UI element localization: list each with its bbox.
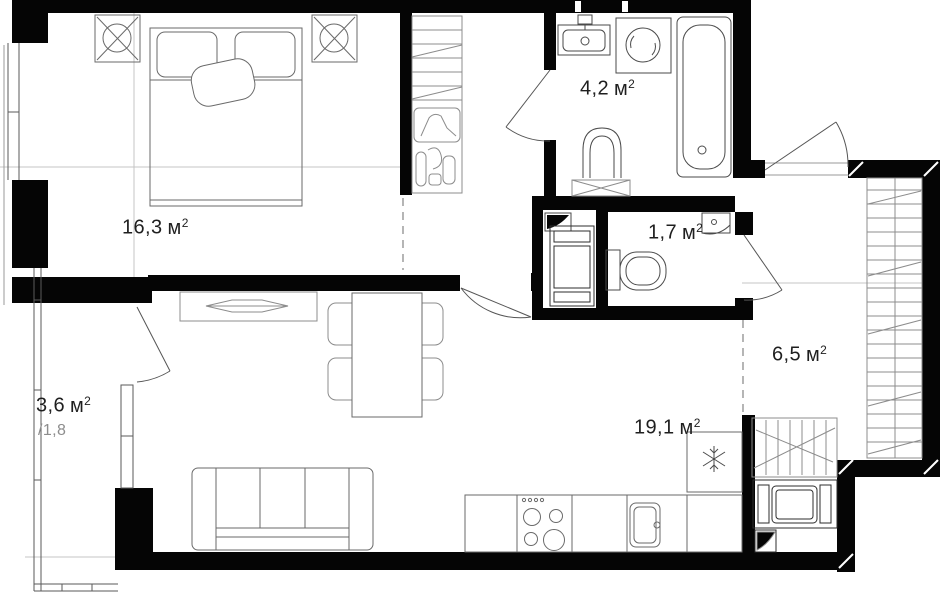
tv-stand xyxy=(180,292,317,321)
bathroom-toilet xyxy=(583,128,621,178)
bath-mat xyxy=(572,180,630,196)
kitchen-sink xyxy=(630,503,660,547)
washing-machine xyxy=(616,18,671,73)
balcony-reduced-area-label: /1,8 xyxy=(38,423,66,439)
bathroom-door xyxy=(506,70,550,141)
vent-duct-icon xyxy=(545,213,571,231)
fridge xyxy=(687,432,742,492)
living-room-door xyxy=(461,288,531,318)
wc-corner-sink xyxy=(702,213,730,234)
wc-area-label: 1,7м2 xyxy=(648,221,703,243)
balcony-door xyxy=(137,307,170,382)
bedroom-area-label: 16,3м2 xyxy=(122,216,189,238)
hallway-shelf-wardrobe xyxy=(867,178,922,458)
coat-rail-wardrobe xyxy=(752,418,837,477)
dining-set xyxy=(328,293,443,417)
bedside-table-right xyxy=(312,15,357,62)
microwave-unit xyxy=(753,480,837,528)
entrance-door xyxy=(765,122,848,175)
bedside-table-left xyxy=(95,15,140,62)
kitchen-counter xyxy=(465,432,742,552)
bathroom-fixtures xyxy=(558,15,731,196)
wc-door xyxy=(744,235,782,300)
bathtub xyxy=(677,17,731,177)
windows xyxy=(4,43,133,591)
vent-duct-icon xyxy=(755,530,776,552)
wc-toilet xyxy=(606,250,666,290)
balcony-area-label: 3,6м2 xyxy=(36,394,91,416)
dining-table xyxy=(352,293,422,417)
living-kitchen-area-label: 19,1м2 xyxy=(634,416,701,438)
floor-plan: 16,3м2 4,2м2 1,7м2 6,5м2 19,1м2 3,6м2 /1… xyxy=(0,0,940,600)
stove xyxy=(522,498,564,550)
hallway-area-label: 6,5м2 xyxy=(772,343,827,365)
stroller-icon xyxy=(416,148,455,186)
chaise-icon xyxy=(414,108,460,142)
double-bed xyxy=(150,28,302,206)
corridor-wardrobe xyxy=(412,16,462,193)
bathroom-area-label: 4,2м2 xyxy=(580,77,635,99)
floor-plan-drawing xyxy=(0,0,940,600)
sofa xyxy=(192,468,373,550)
bathroom-sink xyxy=(558,15,610,55)
snowflake-icon xyxy=(703,446,725,472)
